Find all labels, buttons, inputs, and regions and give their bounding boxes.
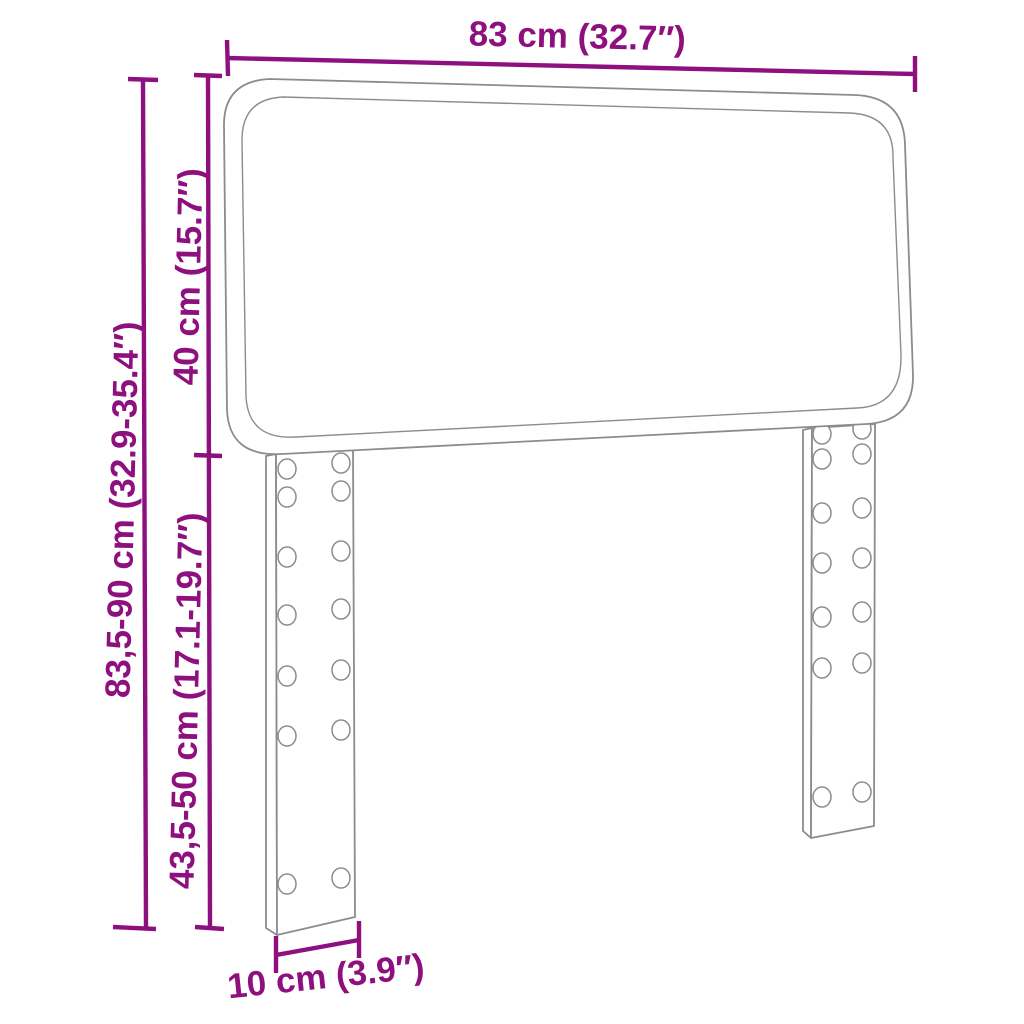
screw-hole xyxy=(332,868,350,888)
dim-total-height-label: 83,5-90 cm (32.9-35.4″) xyxy=(98,321,146,699)
screw-hole xyxy=(332,541,350,561)
screw-hole xyxy=(278,547,296,567)
left-leg-front-face xyxy=(276,449,355,935)
screw-hole xyxy=(332,599,350,619)
screw-hole xyxy=(278,605,296,625)
screw-hole xyxy=(278,874,296,894)
screw-hole xyxy=(853,653,871,673)
screw-hole xyxy=(813,503,831,523)
screw-hole xyxy=(853,444,871,464)
dim-total-height-tick-bottom xyxy=(113,927,156,929)
screw-hole xyxy=(813,658,831,678)
headboard xyxy=(224,79,913,454)
headboard-outline xyxy=(224,79,913,454)
screw-hole xyxy=(332,453,350,473)
right-leg-front-face xyxy=(811,424,875,838)
screw-hole xyxy=(813,607,831,627)
screw-hole xyxy=(853,498,871,518)
screw-hole xyxy=(278,487,296,507)
dim-leg-width-line xyxy=(276,940,359,955)
screw-hole xyxy=(853,782,871,802)
dim-inner-tick-top xyxy=(194,75,222,76)
dim-leg-width-label: 10 cm (3.9″) xyxy=(225,947,426,1006)
dim-total-height-tick-top xyxy=(128,79,158,80)
right-leg xyxy=(803,419,875,838)
screw-hole xyxy=(813,787,831,807)
left-leg xyxy=(266,449,355,935)
dimension-diagram: 83 cm (32.7″) 83,5-90 cm (32.9-35.4″) 40… xyxy=(0,0,1024,1024)
dim-width-line xyxy=(227,58,915,74)
screw-hole xyxy=(278,666,296,686)
dim-heights-inner: 40 cm (15.7″) 43,5-50 cm (17.1-19.7″) xyxy=(162,75,224,929)
screw-hole xyxy=(332,660,350,680)
screw-hole xyxy=(332,481,350,501)
dim-inner-tick-middle xyxy=(194,455,222,456)
screw-hole xyxy=(853,602,871,622)
dim-width-label: 83 cm (32.7″) xyxy=(468,14,686,58)
screw-hole xyxy=(332,720,350,740)
dim-total-height-line xyxy=(143,80,146,928)
screw-hole xyxy=(813,553,831,573)
dim-leg-height-label: 43,5-50 cm (17.1-19.7″) xyxy=(162,512,210,890)
screw-hole xyxy=(278,459,296,479)
screw-hole xyxy=(853,548,871,568)
dim-leg-width: 10 cm (3.9″) xyxy=(225,921,426,1006)
dim-headboard-height-label: 40 cm (15.7″) xyxy=(166,168,210,386)
dim-inner-tick-bottom xyxy=(195,927,224,929)
screw-hole xyxy=(278,726,296,746)
dim-total-height: 83,5-90 cm (32.9-35.4″) xyxy=(98,79,158,929)
screw-hole xyxy=(813,449,831,469)
diagram-canvas: 83 cm (32.7″) 83,5-90 cm (32.9-35.4″) 40… xyxy=(0,0,1024,1024)
